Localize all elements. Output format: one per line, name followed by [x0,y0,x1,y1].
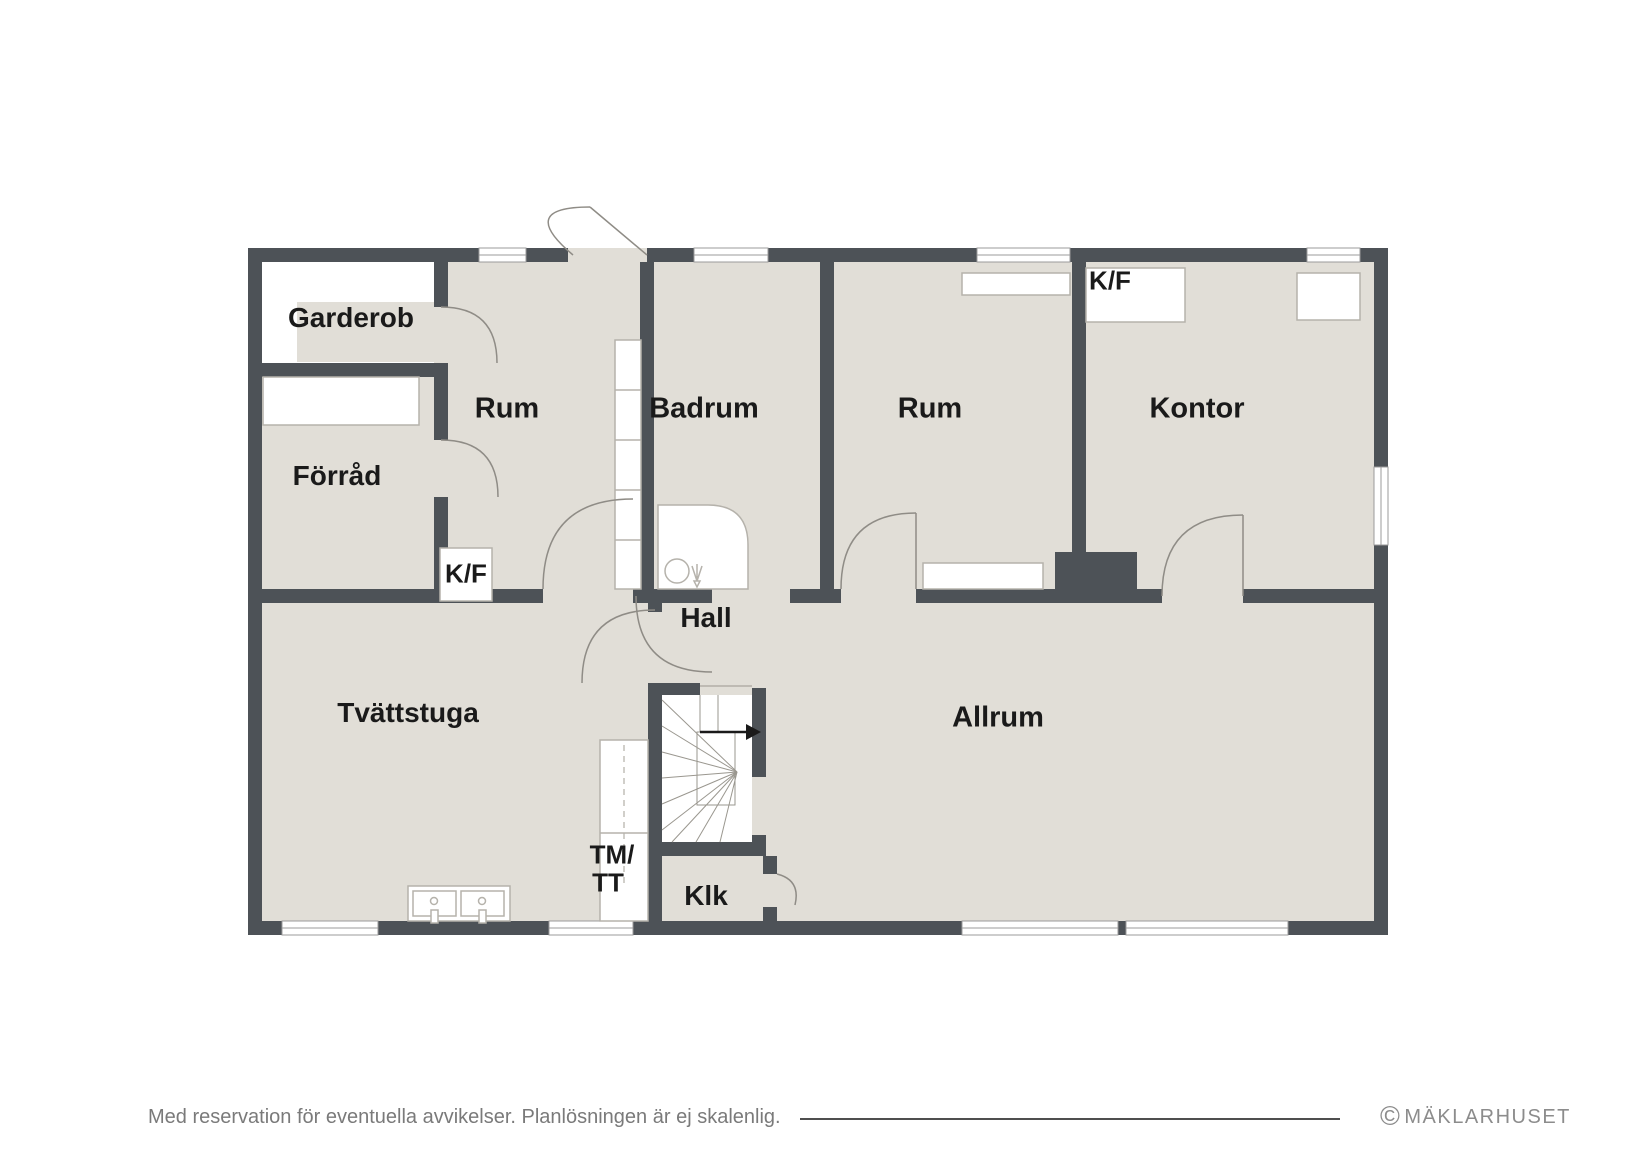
window [977,248,1070,262]
fixture-label-tt: TT [592,868,624,899]
fixture-label-kf-kontor: K/F [1089,266,1131,297]
room-label-klk: Klk [684,880,728,912]
fixture-label-tm: TM/ [590,840,635,871]
rum1-closet [615,340,641,589]
copyright-icon: © [1380,1101,1400,1131]
room-label-rum-2: Rum [898,393,962,426]
window [1126,921,1288,935]
footer-separator-line [800,1118,1340,1120]
room-label-tvattstuga: Tvättstuga [337,697,479,729]
entrance-opening [568,248,647,262]
window [1374,467,1388,545]
room-label-hall: Hall [680,602,731,634]
window [549,921,633,935]
window [282,921,378,935]
kontor-top-furniture [1297,273,1360,320]
window [694,248,768,262]
room-label-badrum: Badrum [649,393,759,426]
room-label-kontor: Kontor [1149,393,1244,426]
laundry-sinks [408,886,510,923]
bathroom-sink-symbol [665,559,689,583]
window [1307,248,1360,262]
room-label-forrad: Förråd [293,460,382,492]
chimney-block [1055,552,1137,603]
fixture-label-kf-rum: K/F [445,559,487,590]
entrance-door [548,207,647,255]
window [479,248,526,262]
room-label-rum-1: Rum [475,393,539,426]
forrad-shelf [263,377,419,425]
footer-brand: © MÄKLARHUSET [1380,1101,1571,1132]
window [962,921,1118,935]
room-label-garderob: Garderob [288,302,414,334]
rum2-bottom-furniture [923,563,1043,589]
brand-name: MÄKLARHUSET [1404,1106,1571,1128]
floor-plan-drawing [0,0,1650,1166]
shower [658,505,748,589]
room-label-allrum: Allrum [952,702,1044,735]
floor-plan-page: Garderob Förråd Rum Badrum Rum Kontor K/… [0,0,1650,1166]
footer-disclaimer: Med reservation för eventuella avvikelse… [148,1106,781,1129]
rum2-top-shelf [962,273,1070,295]
